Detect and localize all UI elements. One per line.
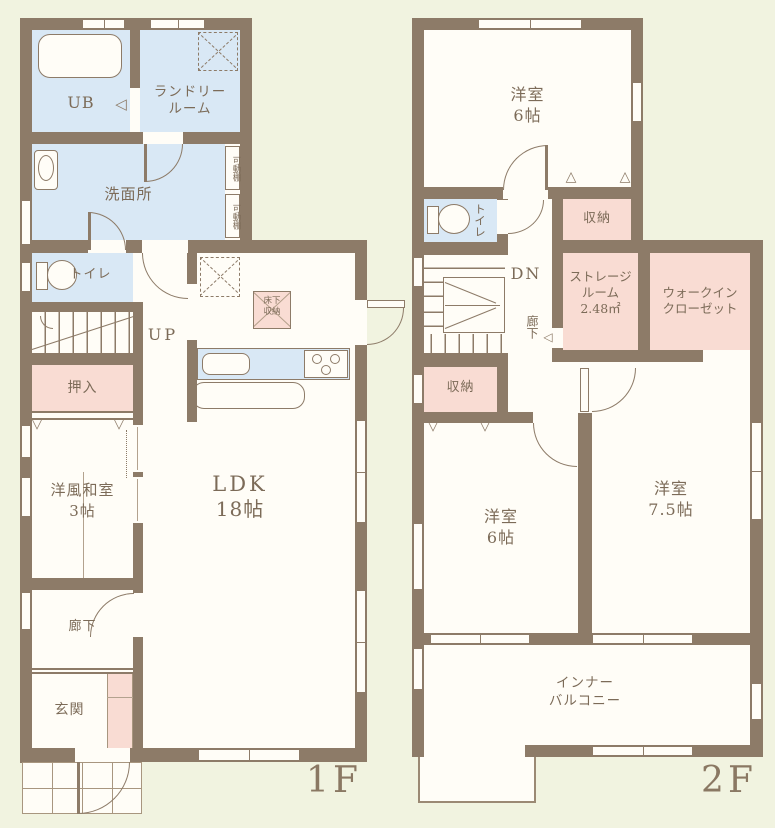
shelf-label: 可動棚: [226, 195, 240, 238]
stove-burner: [312, 354, 322, 364]
wall: [552, 350, 703, 362]
window: [21, 592, 31, 630]
wic-label: ウォークイン: [646, 286, 754, 300]
room-label-bedroom-north: 6帖: [424, 107, 631, 125]
sliding-door-dotted-line: [126, 430, 127, 478]
door-opening: [355, 300, 367, 345]
door-opening: [75, 748, 130, 762]
wall: [552, 199, 563, 240]
room-label-laundry: ルーム: [140, 102, 240, 118]
room-label-bedroom-sw: 洋室: [424, 508, 578, 526]
kitchen-sink: [202, 353, 250, 375]
stairs-up-label: UP: [140, 326, 186, 344]
window: [198, 749, 300, 761]
room-label-hallway-1f: 廊下: [32, 620, 133, 635]
washbasin-bowl: [38, 155, 54, 181]
balcony-label: インナー: [470, 676, 700, 692]
sliding-door-opening: [133, 425, 143, 472]
kitchen-counter-front: [192, 382, 305, 409]
wic-label: クローゼット: [646, 302, 754, 316]
room-label-toilet-2f: トイレ: [470, 199, 486, 242]
window: [413, 523, 423, 590]
window: [430, 634, 530, 644]
wall: [552, 240, 763, 253]
stairs-dn-label: DN: [504, 265, 548, 283]
door-leaf: [545, 145, 548, 190]
door-swing: [367, 308, 404, 345]
stove-burner: [330, 354, 340, 364]
wall: [32, 353, 143, 365]
shoe-cabinet-divider: [107, 697, 133, 698]
shelf-label: 可動棚: [226, 147, 240, 190]
window: [592, 634, 693, 644]
window: [592, 746, 693, 756]
floor-1-label: 1F: [298, 760, 370, 801]
door-leaf: [580, 368, 589, 412]
wall: [187, 252, 197, 284]
folding-door-icon: ◁: [541, 331, 555, 346]
room-label-bedroom-se: 洋室: [592, 480, 750, 498]
stair-winder-line: [445, 305, 500, 306]
window: [478, 19, 582, 29]
window: [21, 477, 31, 517]
room-label-washroom: 洗面所: [32, 186, 225, 203]
door-opening: [143, 132, 183, 144]
sliding-door-line: [137, 479, 138, 521]
sliding-door-opening: [133, 477, 143, 523]
balcony-extension: [418, 757, 536, 803]
room-label-bedroom-north: 洋室: [424, 86, 631, 104]
storage-room-label: 2.48㎡: [563, 302, 638, 316]
floor-2-label: 2F: [693, 760, 765, 801]
door-leaf: [88, 212, 91, 250]
sliding-door-mark: △: [616, 170, 634, 186]
door-opening: [497, 200, 508, 234]
wall: [32, 578, 143, 590]
wall: [133, 312, 143, 762]
room-label-washitsu: 洋風和室: [32, 482, 133, 499]
floor-plan-canvas: ◁: [0, 0, 775, 828]
window: [356, 420, 366, 523]
door-leaf: [77, 762, 80, 814]
wall: [412, 242, 508, 255]
entrance-step: [32, 668, 133, 674]
wall: [20, 18, 32, 763]
closet-west-label: 収納: [424, 381, 497, 396]
room-label-ldk: LDK: [160, 472, 320, 496]
door-opening: [142, 240, 188, 253]
balcony-label: バルコニー: [470, 694, 700, 710]
underfloor-storage-label: 収納: [253, 308, 291, 318]
room-label-bedroom-se: 7.5帖: [592, 501, 750, 519]
toilet-bowl: [438, 204, 470, 234]
room-label-hallway-2f: 廊下: [522, 308, 538, 346]
sliding-door-mark: △: [562, 170, 580, 186]
sliding-door-mark: ▽: [476, 419, 494, 435]
window: [413, 648, 423, 690]
door-opening: [133, 593, 143, 637]
room-label-laundry: ランドリー: [140, 85, 240, 101]
bathtub: [38, 34, 122, 78]
room-label-ub: UB: [32, 94, 130, 112]
wall: [187, 340, 197, 422]
door-leaf: [144, 144, 147, 182]
window: [82, 19, 125, 29]
wall: [240, 18, 252, 252]
shoe-cabinet: [107, 673, 133, 750]
sliding-door-mark: ▽: [424, 419, 442, 435]
room-label-washitsu: 3帖: [32, 503, 133, 520]
sliding-door-line: [137, 427, 138, 470]
window: [356, 590, 366, 693]
room-label-toilet-1f: トイレ: [48, 268, 133, 283]
refrigerator-space: [200, 257, 240, 297]
storage-room-label: ストレージ: [563, 270, 638, 284]
wall: [497, 353, 508, 412]
door-opening: [533, 412, 577, 423]
room-label-entrance: 玄関: [32, 702, 107, 718]
laundry-closet-space: [198, 32, 238, 71]
room-label-bedroom-sw: 6帖: [424, 529, 578, 547]
door-leaf: [367, 300, 405, 308]
wall: [631, 18, 643, 240]
wall: [32, 132, 240, 144]
window: [632, 82, 642, 122]
sliding-door-mark: ▽: [110, 417, 128, 433]
closet-north-label: 収納: [563, 212, 631, 227]
underfloor-storage-label: 床下: [253, 297, 291, 307]
wall: [412, 353, 507, 367]
window: [413, 257, 423, 287]
sliding-door-mark: ▽: [28, 417, 46, 433]
window: [413, 374, 423, 404]
window: [150, 19, 205, 29]
window: [751, 683, 762, 720]
wall: [20, 18, 252, 30]
closet-label-oshiire: 押入: [32, 380, 133, 396]
window: [21, 262, 31, 292]
window: [751, 422, 762, 520]
storage-room-label: ルーム: [563, 286, 638, 300]
window: [21, 200, 31, 245]
room-label-ldk: 18帖: [160, 498, 320, 521]
wall: [32, 302, 143, 312]
stove-burner: [321, 365, 331, 375]
staircase-2f: [418, 334, 505, 353]
door-opening: [130, 88, 140, 132]
